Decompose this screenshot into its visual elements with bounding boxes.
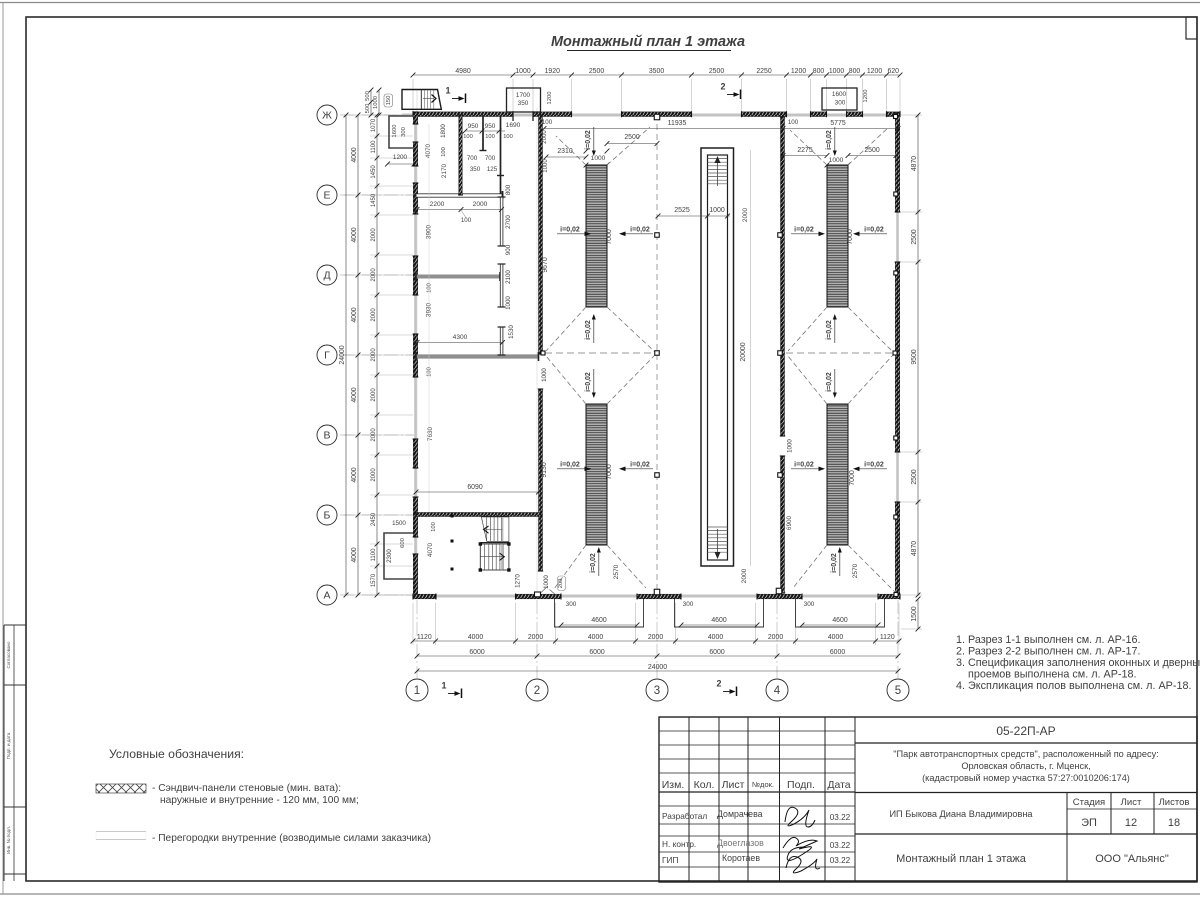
svg-text:9670: 9670 bbox=[542, 257, 549, 272]
svg-text:2450: 2450 bbox=[371, 512, 377, 526]
svg-text:1000: 1000 bbox=[709, 207, 725, 214]
svg-text:i=0,02: i=0,02 bbox=[794, 461, 814, 468]
svg-text:1200: 1200 bbox=[791, 68, 806, 75]
svg-text:1920: 1920 bbox=[545, 68, 560, 75]
svg-text:i=0,02: i=0,02 bbox=[826, 130, 833, 150]
svg-text:i=0,02: i=0,02 bbox=[826, 320, 833, 340]
svg-text:6000: 6000 bbox=[589, 649, 604, 656]
svg-text:1000: 1000 bbox=[591, 155, 606, 162]
svg-text:(кадастровый номер участка 57:: (кадастровый номер участка 57:27:0010206… bbox=[922, 773, 1130, 783]
svg-text:100: 100 bbox=[542, 119, 553, 126]
svg-text:Б: Б bbox=[324, 510, 331, 522]
svg-text:100: 100 bbox=[431, 521, 437, 532]
svg-text:i=0,02: i=0,02 bbox=[560, 461, 580, 468]
svg-text:2000: 2000 bbox=[371, 388, 377, 402]
svg-text:Д: Д bbox=[323, 270, 330, 282]
svg-text:2: 2 bbox=[534, 685, 540, 697]
svg-text:4870: 4870 bbox=[911, 156, 918, 171]
svg-text:Лист: Лист bbox=[722, 779, 745, 791]
svg-text:1: 1 bbox=[441, 681, 446, 691]
svg-text:2170: 2170 bbox=[441, 163, 448, 178]
svg-text:300: 300 bbox=[835, 100, 846, 107]
svg-text:- Перегородки внутренние (возв: - Перегородки внутренние (возводимые сил… bbox=[152, 833, 431, 844]
svg-text:100: 100 bbox=[503, 134, 513, 140]
svg-text:2300: 2300 bbox=[386, 549, 393, 563]
svg-text:2310: 2310 bbox=[557, 148, 572, 155]
svg-text:9130: 9130 bbox=[541, 462, 548, 477]
svg-text:Коротаев: Коротаев bbox=[722, 853, 760, 863]
svg-text:1690: 1690 bbox=[506, 122, 521, 129]
svg-text:2570: 2570 bbox=[852, 563, 859, 578]
svg-text:3: 3 bbox=[654, 685, 660, 697]
svg-text:4980: 4980 bbox=[455, 68, 470, 75]
svg-text:2000: 2000 bbox=[768, 634, 783, 641]
svg-text:Изм.: Изм. bbox=[662, 779, 685, 791]
svg-text:350: 350 bbox=[470, 166, 481, 173]
svg-text:100: 100 bbox=[788, 119, 799, 126]
svg-text:4000: 4000 bbox=[351, 307, 358, 322]
svg-text:4000: 4000 bbox=[708, 634, 723, 641]
svg-text:1000: 1000 bbox=[829, 68, 844, 75]
svg-text:18: 18 bbox=[1168, 817, 1180, 829]
svg-text:i=0,02: i=0,02 bbox=[585, 320, 592, 340]
svg-text:2000: 2000 bbox=[371, 348, 377, 362]
svg-text:Кол.: Кол. bbox=[694, 779, 715, 791]
svg-text:950: 950 bbox=[468, 123, 479, 130]
svg-text:300: 300 bbox=[566, 601, 577, 608]
svg-text:4600: 4600 bbox=[832, 617, 847, 624]
svg-text:2: 2 bbox=[720, 82, 725, 92]
svg-text:4870: 4870 bbox=[911, 541, 918, 556]
svg-text:4000: 4000 bbox=[351, 147, 358, 162]
svg-text:4070: 4070 bbox=[425, 143, 432, 158]
svg-text:100: 100 bbox=[427, 283, 433, 293]
svg-text:i=0,02: i=0,02 bbox=[826, 372, 833, 392]
svg-text:4000: 4000 bbox=[588, 634, 603, 641]
svg-text:03.22: 03.22 bbox=[830, 841, 851, 850]
svg-text:проемов выполнена см. л. АР-18: проемов выполнена см. л. АР-18. bbox=[968, 669, 1137, 681]
svg-text:i=0,02: i=0,02 bbox=[794, 226, 814, 233]
svg-text:5: 5 bbox=[895, 685, 901, 697]
svg-text:ЭП: ЭП bbox=[1081, 817, 1097, 829]
svg-text:1: 1 bbox=[414, 685, 420, 697]
svg-text:12: 12 bbox=[1125, 817, 1137, 829]
svg-text:1000: 1000 bbox=[505, 296, 512, 310]
svg-text:2500: 2500 bbox=[624, 134, 639, 141]
svg-text:1100: 1100 bbox=[371, 548, 377, 562]
svg-text:ИП Быкова Диана Владимировна: ИП Быкова Диана Владимировна bbox=[889, 809, 1033, 819]
svg-text:Н. контр.: Н. контр. bbox=[662, 839, 696, 849]
svg-text:2000: 2000 bbox=[741, 568, 748, 583]
svg-text:7000: 7000 bbox=[606, 464, 613, 479]
svg-text:i=0,02: i=0,02 bbox=[864, 226, 884, 233]
svg-text:2000: 2000 bbox=[371, 308, 377, 322]
svg-text:Согласовано: Согласовано bbox=[6, 641, 11, 669]
svg-text:6090: 6090 bbox=[467, 484, 482, 491]
svg-text:- Сэндвич-панели стеновые (мин: - Сэндвич-панели стеновые (мин. вата): bbox=[152, 783, 341, 794]
svg-text:1600: 1600 bbox=[832, 91, 847, 98]
svg-text:20000: 20000 bbox=[740, 342, 747, 361]
svg-text:100: 100 bbox=[427, 367, 433, 377]
svg-text:6000: 6000 bbox=[709, 649, 724, 656]
svg-text:1450: 1450 bbox=[371, 165, 377, 179]
svg-text:24000: 24000 bbox=[339, 345, 346, 364]
svg-text:Листов: Листов bbox=[1159, 797, 1190, 808]
svg-text:7630: 7630 bbox=[427, 426, 434, 441]
svg-text:2000: 2000 bbox=[742, 207, 749, 222]
svg-text:800: 800 bbox=[849, 68, 861, 75]
svg-text:2570: 2570 bbox=[613, 564, 620, 579]
svg-text:Г: Г bbox=[324, 350, 330, 362]
svg-text:4600: 4600 bbox=[591, 617, 606, 624]
svg-text:i=0,02: i=0,02 bbox=[585, 372, 592, 392]
svg-text:9500: 9500 bbox=[911, 349, 918, 364]
svg-text:Е: Е bbox=[323, 190, 330, 202]
svg-text:03.22: 03.22 bbox=[830, 856, 851, 865]
svg-text:наружные и внутренние - 120 мм: наружные и внутренние - 120 мм, 100 мм; bbox=[160, 795, 359, 806]
svg-text:i=0,02: i=0,02 bbox=[585, 130, 592, 150]
svg-text:1200: 1200 bbox=[863, 89, 869, 103]
svg-text:800: 800 bbox=[813, 68, 825, 75]
svg-text:2100: 2100 bbox=[505, 270, 512, 284]
svg-text:125: 125 bbox=[487, 166, 498, 173]
svg-text:6000: 6000 bbox=[469, 649, 484, 656]
svg-text:Ж: Ж bbox=[322, 110, 332, 122]
svg-text:1000: 1000 bbox=[541, 368, 548, 382]
svg-text:1600: 1600 bbox=[392, 124, 398, 138]
svg-text:100: 100 bbox=[461, 217, 472, 224]
svg-text:4000: 4000 bbox=[351, 387, 358, 402]
svg-text:3. Спецификация заполнения око: 3. Спецификация заполнения оконных и две… bbox=[956, 657, 1200, 669]
svg-text:11935: 11935 bbox=[668, 120, 687, 127]
svg-text:В: В bbox=[323, 430, 330, 442]
svg-text:600: 600 bbox=[400, 537, 406, 548]
svg-text:Орловская область, г. Мценск,: Орловская область, г. Мценск, bbox=[961, 761, 1090, 771]
svg-text:4000: 4000 bbox=[351, 467, 358, 482]
svg-text:ГИП: ГИП bbox=[662, 855, 678, 865]
svg-text:Условные обозначения:: Условные обозначения: bbox=[109, 747, 244, 761]
svg-text:Монтажный план 1 этажа: Монтажный план 1 этажа bbox=[896, 853, 1027, 865]
svg-text:1. Разрез 1-1 выполнен см. л.: 1. Разрез 1-1 выполнен см. л. АР-16. bbox=[956, 634, 1140, 646]
svg-text:7000: 7000 bbox=[606, 229, 613, 244]
svg-text:Разработал: Разработал bbox=[662, 811, 707, 821]
svg-text:2500: 2500 bbox=[911, 229, 918, 244]
svg-text:Домрачева: Домрачева bbox=[717, 809, 763, 819]
svg-text:i=0,02: i=0,02 bbox=[630, 226, 650, 233]
svg-text:300: 300 bbox=[401, 126, 407, 137]
svg-text:700: 700 bbox=[467, 155, 478, 162]
svg-text:2000: 2000 bbox=[648, 634, 663, 641]
svg-text:4. Экспликация полов выполнена: 4. Экспликация полов выполнена см. л. АР… bbox=[956, 680, 1191, 692]
svg-text:"Парк автотранспортных средств: "Парк автотранспортных средств", располо… bbox=[893, 749, 1159, 759]
svg-text:300: 300 bbox=[804, 601, 815, 608]
svg-text:1120: 1120 bbox=[880, 634, 895, 641]
svg-text:1570: 1570 bbox=[371, 573, 377, 587]
svg-text:1500: 1500 bbox=[392, 520, 406, 527]
svg-text:300: 300 bbox=[683, 601, 694, 608]
svg-text:05-22П-АР: 05-22П-АР bbox=[996, 724, 1055, 738]
svg-text:Лист: Лист bbox=[1121, 797, 1142, 808]
svg-text:Двоеглазов: Двоеглазов bbox=[717, 838, 764, 848]
svg-text:150: 150 bbox=[386, 95, 392, 106]
svg-text:4: 4 bbox=[774, 685, 781, 697]
svg-text:2: 2 bbox=[716, 679, 721, 689]
svg-text:Подп.: Подп. bbox=[787, 779, 815, 791]
svg-text:i=0,02: i=0,02 bbox=[590, 553, 597, 573]
svg-text:2525: 2525 bbox=[674, 207, 690, 214]
svg-text:2000: 2000 bbox=[371, 468, 377, 482]
svg-text:1800: 1800 bbox=[440, 124, 447, 138]
svg-text:ООО "Альянс": ООО "Альянс" bbox=[1095, 853, 1169, 865]
svg-text:4070: 4070 bbox=[427, 542, 434, 557]
svg-text:2000: 2000 bbox=[528, 634, 543, 641]
svg-text:i=0,02: i=0,02 bbox=[630, 461, 650, 468]
svg-text:2500: 2500 bbox=[911, 469, 918, 484]
svg-text:2200: 2200 bbox=[430, 201, 445, 208]
svg-text:2500: 2500 bbox=[864, 147, 879, 154]
svg-text:350: 350 bbox=[518, 100, 529, 107]
svg-text:200: 200 bbox=[558, 579, 564, 589]
svg-text:500: 500 bbox=[365, 103, 371, 114]
svg-text:i=0,02: i=0,02 bbox=[831, 553, 838, 573]
svg-text:1500: 1500 bbox=[911, 606, 918, 621]
svg-text:950: 950 bbox=[485, 123, 496, 130]
svg-text:1000: 1000 bbox=[515, 68, 530, 75]
svg-text:4000: 4000 bbox=[351, 227, 358, 242]
svg-text:1000: 1000 bbox=[373, 95, 379, 109]
svg-text:2250: 2250 bbox=[756, 68, 771, 75]
svg-text:3500: 3500 bbox=[649, 68, 664, 75]
svg-text:2000: 2000 bbox=[371, 228, 377, 242]
svg-text:Стадия: Стадия bbox=[1073, 797, 1105, 808]
svg-text:7000: 7000 bbox=[849, 470, 856, 485]
svg-text:1: 1 bbox=[445, 86, 450, 96]
svg-text:1700: 1700 bbox=[516, 92, 531, 99]
svg-text:620: 620 bbox=[888, 68, 900, 75]
svg-text:2000: 2000 bbox=[473, 201, 488, 208]
svg-text:1100: 1100 bbox=[371, 140, 377, 154]
svg-text:4000: 4000 bbox=[468, 634, 483, 641]
svg-text:1120: 1120 bbox=[417, 634, 432, 641]
svg-text:2. Разрез 2-2 выполнен см. л.: 2. Разрез 2-2 выполнен см. л. АР-17. bbox=[956, 646, 1140, 658]
svg-text:03.22: 03.22 bbox=[830, 813, 851, 822]
svg-text:900: 900 bbox=[505, 244, 512, 255]
svg-text:2000: 2000 bbox=[542, 130, 548, 144]
svg-text:6000: 6000 bbox=[830, 649, 845, 656]
svg-text:i=0,02: i=0,02 bbox=[864, 461, 884, 468]
svg-text:Монтажный план 1 этажа: Монтажный план 1 этажа bbox=[551, 34, 745, 50]
svg-text:100: 100 bbox=[463, 134, 473, 140]
svg-text:24000: 24000 bbox=[648, 664, 667, 671]
svg-text:№док.: №док. bbox=[752, 780, 774, 789]
svg-text:1070: 1070 bbox=[371, 118, 377, 132]
svg-text:700: 700 bbox=[485, 155, 496, 162]
svg-text:1200: 1200 bbox=[867, 68, 882, 75]
svg-text:4000: 4000 bbox=[828, 634, 843, 641]
svg-text:1000: 1000 bbox=[787, 439, 794, 453]
svg-text:100: 100 bbox=[485, 134, 495, 140]
svg-text:6900: 6900 bbox=[786, 515, 793, 530]
svg-text:7000: 7000 bbox=[847, 229, 854, 244]
svg-text:2500: 2500 bbox=[589, 68, 604, 75]
svg-text:2000: 2000 bbox=[371, 268, 377, 282]
svg-text:1000: 1000 bbox=[543, 159, 549, 173]
svg-text:i=0,02: i=0,02 bbox=[560, 226, 580, 233]
svg-text:2700: 2700 bbox=[505, 215, 512, 229]
svg-text:800: 800 bbox=[505, 184, 512, 195]
svg-text:5775: 5775 bbox=[830, 120, 845, 127]
svg-text:Дата: Дата bbox=[827, 779, 850, 791]
svg-text:1200: 1200 bbox=[547, 91, 553, 105]
svg-text:4000: 4000 bbox=[351, 547, 358, 562]
svg-text:500: 500 bbox=[365, 90, 371, 101]
svg-text:1000: 1000 bbox=[543, 575, 550, 589]
svg-text:2500: 2500 bbox=[709, 68, 724, 75]
svg-text:Подп. и дата: Подп. и дата bbox=[6, 732, 11, 759]
svg-text:А: А bbox=[323, 590, 330, 602]
svg-text:1000: 1000 bbox=[829, 157, 844, 164]
svg-text:100: 100 bbox=[441, 147, 447, 157]
svg-text:1450: 1450 bbox=[371, 193, 377, 207]
svg-text:4300: 4300 bbox=[453, 334, 468, 341]
svg-text:1270: 1270 bbox=[515, 574, 522, 588]
svg-text:1200: 1200 bbox=[393, 154, 408, 161]
svg-text:2000: 2000 bbox=[371, 428, 377, 442]
svg-text:2275: 2275 bbox=[797, 147, 812, 154]
svg-text:4600: 4600 bbox=[711, 617, 726, 624]
svg-text:Инв. № подл.: Инв. № подл. bbox=[6, 826, 11, 854]
svg-text:1530: 1530 bbox=[508, 325, 515, 339]
